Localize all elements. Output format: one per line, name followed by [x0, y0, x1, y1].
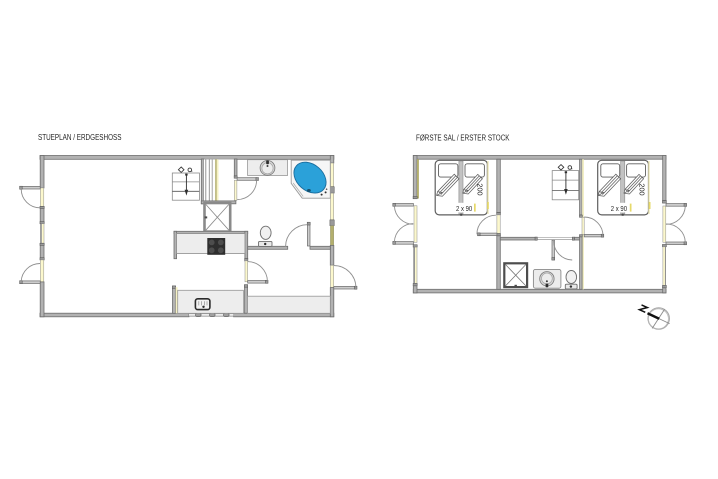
- svg-text:FØRSTE SAL / ERSTER STOCK: FØRSTE SAL / ERSTER STOCK: [416, 133, 510, 143]
- svg-text:2 x 90: 2 x 90: [611, 204, 627, 213]
- svg-text:STUEPLAN / ERDGESHOSS: STUEPLAN / ERDGESHOSS: [38, 132, 122, 142]
- svg-text:200: 200: [638, 183, 647, 195]
- svg-text:200: 200: [476, 183, 485, 195]
- svg-text:2 x 90: 2 x 90: [456, 204, 472, 213]
